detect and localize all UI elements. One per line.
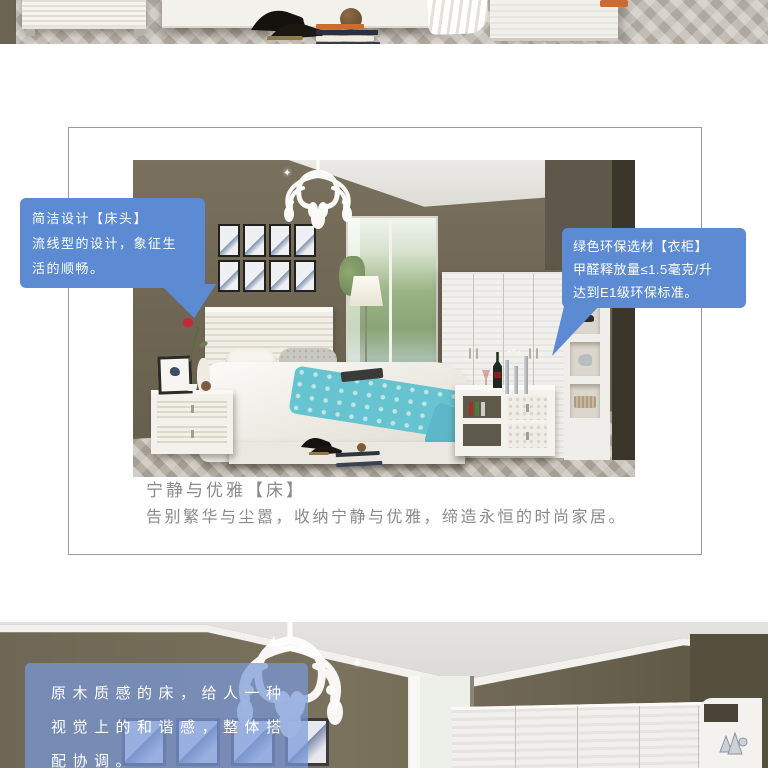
room-corner-shadow: [612, 160, 635, 460]
shelf-cubby: [570, 384, 600, 418]
basket-decor: [574, 396, 596, 408]
frame-art: [296, 262, 314, 291]
drawer-knob: [191, 430, 194, 438]
book-graphic: [316, 30, 378, 35]
picture-frame: [269, 260, 291, 293]
callout-line: 甲醛释放量≤1.5毫克/升: [573, 258, 735, 281]
callout-line: 达到E1级环保标准。: [573, 281, 735, 304]
wardrobe-door-gap: [639, 706, 640, 768]
product-detail-page: ✦ ✦: [0, 0, 768, 768]
previous-photo-strip: [0, 0, 768, 44]
callout-line: 简洁设计【床头】: [32, 206, 193, 231]
book-spine: [475, 402, 479, 416]
bench-drawer: [507, 396, 547, 420]
door-handle: [476, 348, 478, 359]
wood-bed-section: ✦ ✦ 原木质感的床，给人一种 视觉上的和谐感，整体搭 配协调。: [0, 622, 768, 768]
vase-bar: [524, 356, 528, 394]
door-handle: [536, 348, 538, 359]
swan-decor: [578, 354, 592, 366]
flower-dot: [507, 350, 511, 354]
flower-dot: [517, 351, 521, 355]
book-stack-graphic: [336, 451, 383, 468]
shelf-slot: [704, 704, 738, 722]
book-spine: [469, 402, 473, 416]
callout-line: 流线型的设计，象征生: [32, 231, 193, 256]
vase-bar: [514, 366, 518, 394]
sparkle-icon: ✦: [283, 168, 291, 179]
vase-bar: [505, 360, 509, 394]
picture-frame: [294, 260, 316, 293]
callout-headboard: 简洁设计【床头】 流线型的设计，象征生 活的顺畅。: [20, 198, 205, 288]
frame-art: [220, 262, 238, 291]
photo-caption: 宁静与优雅【床】 告别繁华与尘嚣，收纳宁静与优雅，缔造永恒的时尚家居。: [146, 480, 627, 528]
bench-shelf-slot: [463, 396, 501, 418]
sparkle-icon: ✦: [352, 656, 362, 670]
wardrobe-base-graphic: [490, 0, 618, 41]
rose-flower-icon: [183, 318, 193, 327]
wall-sliver: [0, 0, 16, 44]
picture-frame: [218, 260, 240, 293]
nightstand-graphic: [151, 390, 233, 454]
overlay-line: 配协调。: [51, 745, 308, 768]
crystal-ornament-icon: [714, 730, 750, 763]
nightstand-graphic: [22, 0, 146, 29]
orange-decor-graphic: [600, 0, 628, 7]
frame-art: [271, 262, 289, 291]
rose-stem: [189, 326, 200, 361]
nightstand-drawer: [157, 423, 227, 444]
book-graphic: [316, 36, 374, 41]
shelf-cubby: [570, 342, 600, 376]
overlay-line: 原木质感的床，给人一种: [51, 677, 308, 711]
silver-vases-graphic: [505, 356, 529, 394]
wood-text-overlay: 原木质感的床，给人一种 视觉上的和谐感，整体搭 配协调。: [25, 663, 308, 768]
round-decor-graphic: [201, 381, 211, 391]
floor-lamp-shade: [349, 276, 383, 306]
book-graphic: [316, 24, 364, 29]
overlay-line: 视觉上的和谐感，整体搭: [51, 711, 308, 745]
bed-section-panel: ✦ ✦: [68, 127, 702, 555]
wardrobe-door-gap: [515, 706, 516, 768]
bench-drawer: [507, 424, 547, 448]
window-glare: [410, 676, 420, 768]
caption-title: 宁静与优雅【床】: [146, 480, 627, 502]
book-spine: [481, 402, 485, 416]
caption-body: 告别繁华与尘嚣，收纳宁静与优雅，缔造永恒的时尚家居。: [146, 507, 627, 528]
drawer-knob: [191, 405, 194, 413]
drawer-knob: [526, 404, 529, 412]
picture-frame: [243, 260, 265, 293]
chandelier-icon: [263, 160, 373, 235]
wardrobe-door-gap: [577, 706, 578, 768]
tv-bench-graphic: [455, 385, 555, 456]
furniture-foot: [134, 29, 143, 36]
wardrobe-door-gap: [698, 706, 699, 768]
callout-line: 活的顺畅。: [32, 256, 193, 281]
cup-graphic: [185, 384, 197, 391]
round-decor-graphic: [357, 443, 366, 452]
white-flowers-graphic: [507, 348, 523, 356]
sparkle-icon: ✦: [341, 198, 349, 209]
door-handle: [529, 348, 531, 359]
frame-art: [245, 262, 263, 291]
nightstand-drawer: [157, 398, 227, 419]
book-graphic: [316, 42, 380, 44]
book-stack-graphic: [316, 24, 380, 44]
callout-line: 绿色环保选材【衣柜】: [573, 235, 735, 258]
bedroom-photo: ✦ ✦: [133, 160, 635, 477]
flower-dot: [512, 348, 516, 352]
picture-frame: [218, 224, 240, 257]
drawer-knob: [526, 432, 529, 440]
frame-art: [220, 226, 238, 255]
wine-label: [494, 372, 501, 378]
door-handle: [469, 348, 471, 359]
frame-art: [245, 226, 263, 255]
blanket-drape-graphic: [427, 0, 488, 35]
bird-art: [170, 367, 180, 376]
bench-shelf-slot: [463, 424, 501, 446]
sparkle-icon: ✦: [268, 634, 279, 650]
furniture-foot: [26, 29, 35, 36]
callout-wardrobe: 绿色环保选材【衣柜】 甲醛释放量≤1.5毫克/升 达到E1级环保标准。: [562, 228, 746, 308]
